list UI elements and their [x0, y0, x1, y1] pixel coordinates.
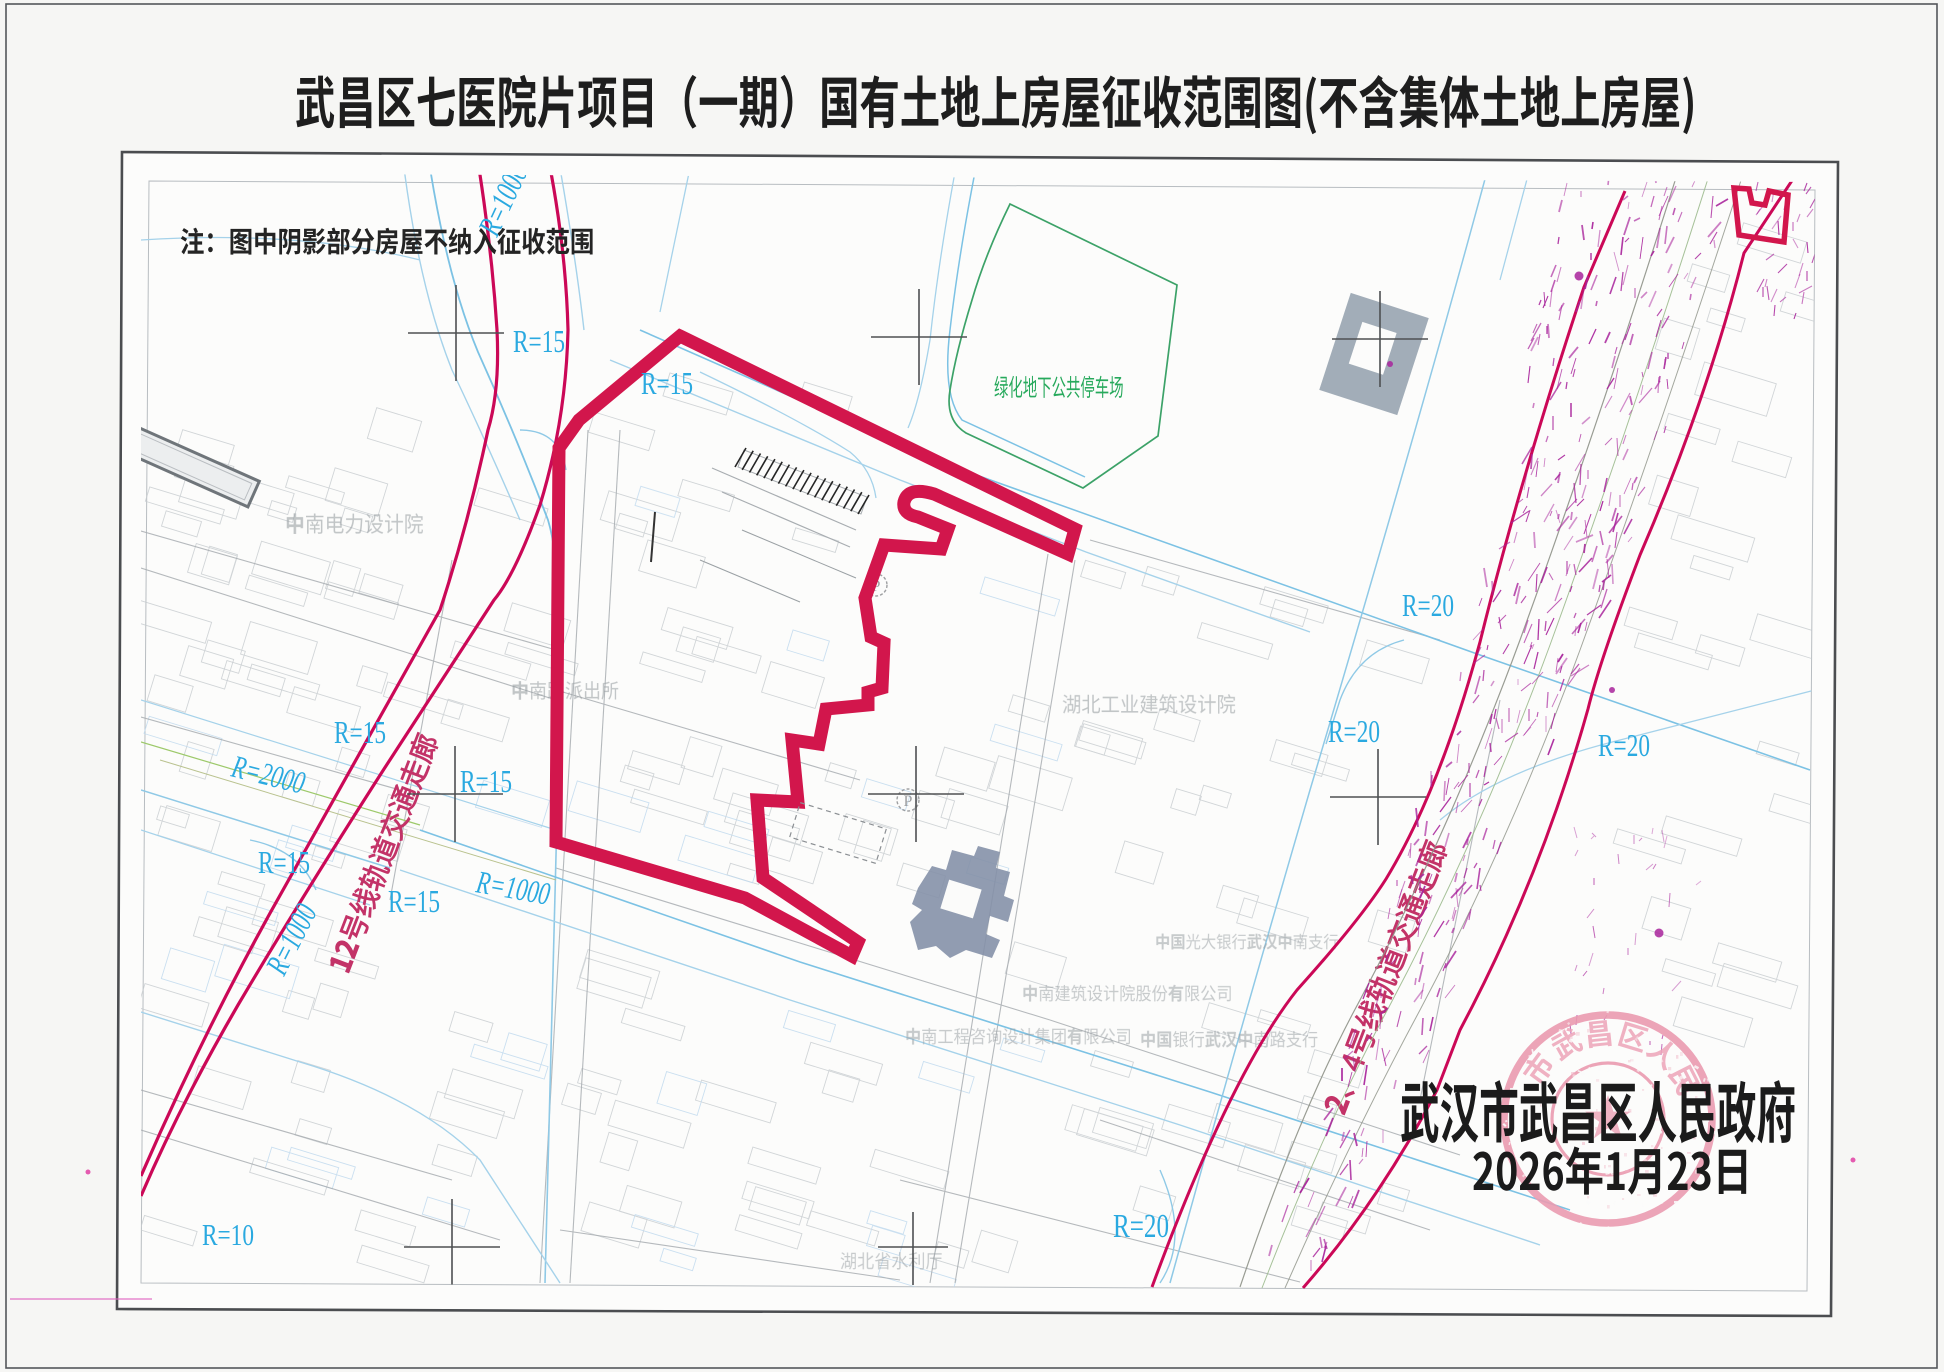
svg-text:R=20: R=20	[1402, 587, 1454, 623]
svg-text:R=20: R=20	[1598, 727, 1650, 763]
svg-text:R=15: R=15	[334, 714, 386, 750]
svg-text:R=15: R=15	[258, 844, 310, 880]
svg-text:R=15: R=15	[388, 883, 440, 919]
svg-text:R=10: R=10	[202, 1217, 254, 1252]
svg-text:R=20: R=20	[1328, 713, 1380, 749]
svg-text:R=20: R=20	[1113, 1208, 1169, 1245]
svg-text:P: P	[904, 793, 913, 810]
svg-text:R=15: R=15	[513, 323, 565, 359]
svg-text:R=15: R=15	[641, 365, 693, 401]
